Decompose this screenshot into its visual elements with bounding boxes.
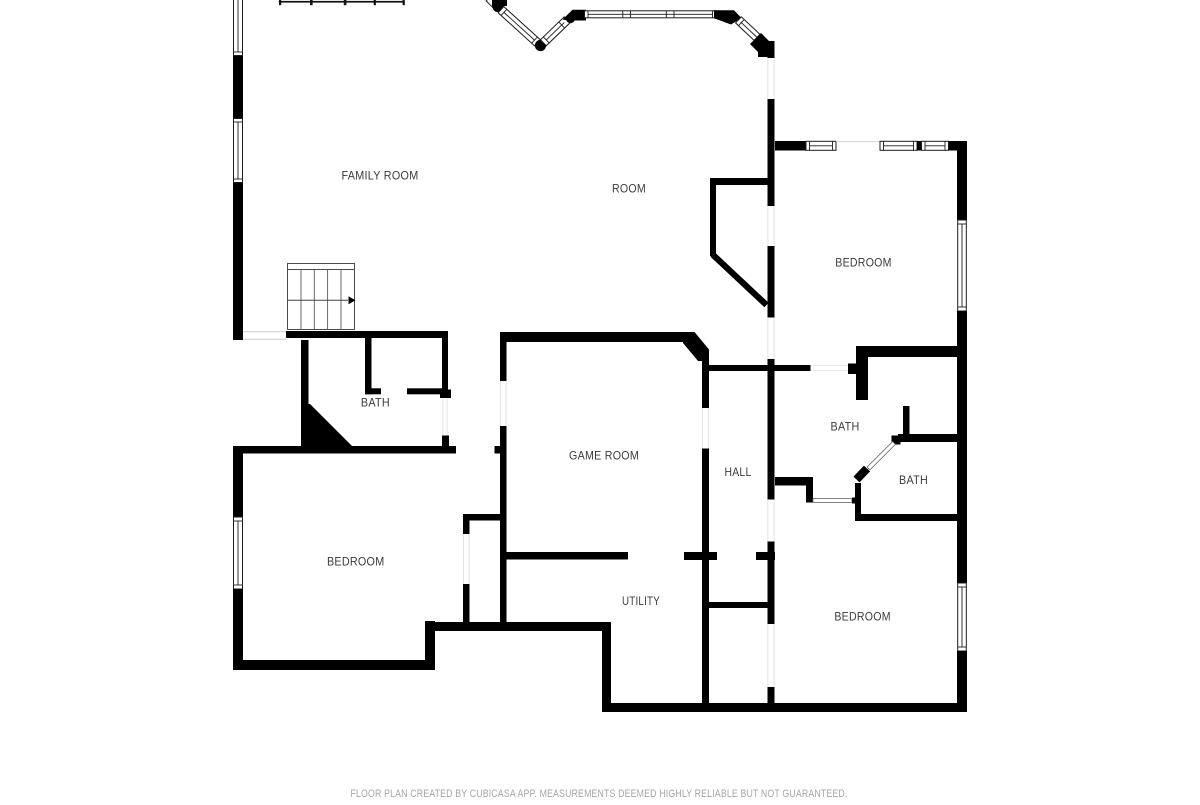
svg-text:ROOM: ROOM xyxy=(612,182,646,196)
svg-text:BATH: BATH xyxy=(831,420,860,434)
svg-text:BEDROOM: BEDROOM xyxy=(834,610,891,624)
svg-text:HALL: HALL xyxy=(725,465,752,479)
svg-text:BEDROOM: BEDROOM xyxy=(835,256,892,270)
svg-text:GAME ROOM: GAME ROOM xyxy=(569,449,639,463)
svg-text:BATH: BATH xyxy=(361,396,390,410)
svg-text:FLOOR PLAN CREATED BY CUBICASA: FLOOR PLAN CREATED BY CUBICASA APP. MEAS… xyxy=(351,788,848,800)
svg-text:BATH: BATH xyxy=(899,473,928,487)
svg-text:FAMILY ROOM: FAMILY ROOM xyxy=(342,169,419,183)
svg-text:BEDROOM: BEDROOM xyxy=(327,555,385,569)
svg-text:UTILITY: UTILITY xyxy=(622,594,660,608)
